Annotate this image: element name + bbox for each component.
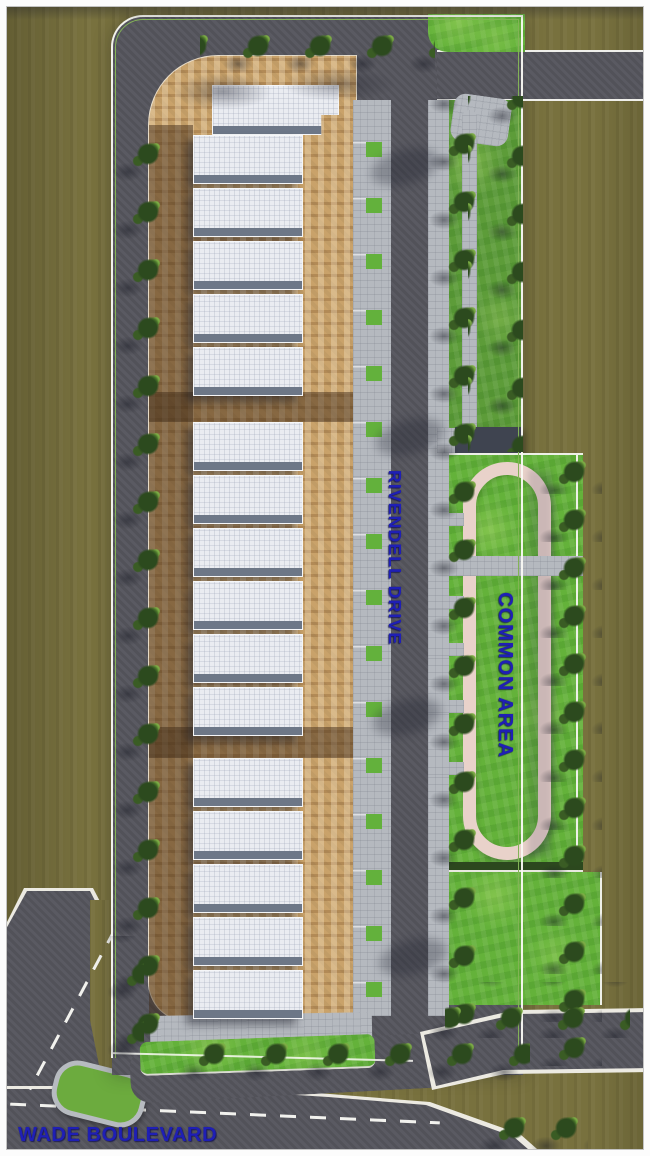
building-unit xyxy=(193,864,303,913)
tree-shadows-entry xyxy=(150,52,440,124)
building-unit xyxy=(193,758,303,807)
street-label-wade-boulevard: WADE BOULEVARD xyxy=(18,1124,217,1147)
building-unit xyxy=(193,970,303,1019)
building-row-middle xyxy=(193,422,303,736)
boundary-line-inner xyxy=(115,19,519,1058)
building-row-north xyxy=(193,135,303,396)
building-unit xyxy=(193,475,303,524)
site-plan-rendering: RIVENDELL DRIVE COMMON AREA WADE BOULEVA… xyxy=(0,0,650,1156)
building-unit xyxy=(193,687,303,736)
building-unit xyxy=(193,811,303,860)
building-unit xyxy=(193,581,303,630)
building-row-south xyxy=(193,758,303,1019)
building-unit xyxy=(193,241,303,290)
common-area-boundary xyxy=(576,453,578,872)
top-edge-shadow xyxy=(6,6,644,20)
building-unit xyxy=(193,294,303,343)
area-label-common-area: COMMON AREA xyxy=(493,592,516,758)
building-unit xyxy=(193,917,303,966)
building-unit xyxy=(193,347,303,396)
track-tree-shadow xyxy=(528,470,552,858)
building-unit xyxy=(193,634,303,683)
street-label-rivendell-drive: RIVENDELL DRIVE xyxy=(384,470,405,645)
building-unit xyxy=(193,188,303,237)
building-unit xyxy=(193,135,303,184)
building-unit xyxy=(193,422,303,471)
building-unit xyxy=(193,528,303,577)
